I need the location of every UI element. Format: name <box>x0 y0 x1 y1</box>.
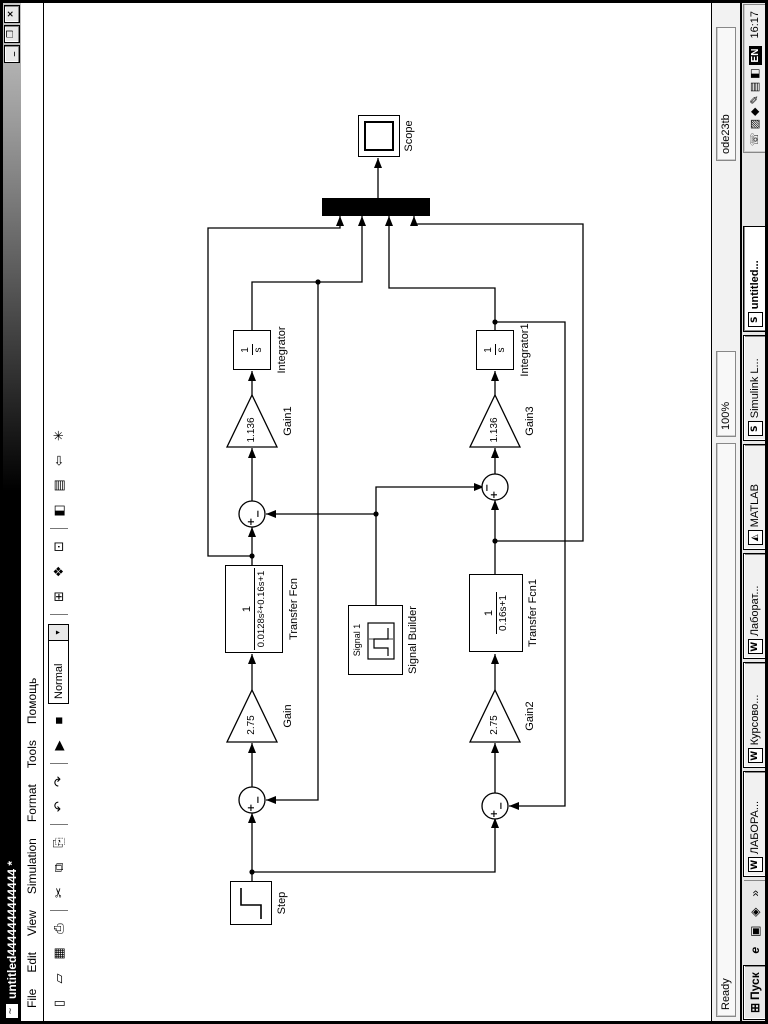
transfer-fcn-block[interactable]: 1 0.0128s²+0.16s+1 <box>225 565 283 653</box>
gain1-value[interactable]: 1.136 <box>246 415 257 445</box>
signal-builder-icon <box>367 620 397 660</box>
taskbar-window-kursovoy[interactable]: W Курсово... <box>743 662 767 768</box>
transfer-fcn1-denominator: 0.16s+1 <box>496 592 510 634</box>
tray-icon-volume[interactable]: ◧ <box>748 68 762 78</box>
workspace-icon[interactable]: ▤ <box>47 474 70 497</box>
sum-minus-sign: − <box>254 796 264 804</box>
transfer-fcn1-label: Transfer Fcn1 <box>527 574 539 652</box>
stop-simulation-icon[interactable]: ■ <box>47 709 70 732</box>
model-canvas[interactable]: Step + − 2.75 Gain 1 0.0128s²+0.16s+1 Tr… <box>73 3 712 1021</box>
status-ready: Ready <box>716 443 736 1017</box>
gain1-label: Gain1 <box>282 390 294 452</box>
update-diagram-icon[interactable]: ⊞ <box>47 585 70 608</box>
show-desktop-icon[interactable]: ▣ <box>747 923 763 939</box>
scope-screen-icon <box>364 121 394 151</box>
gain-value[interactable]: 2.75 <box>246 710 257 740</box>
taskbar-window-laboratornaya1[interactable]: W ЛАБОРА... <box>743 771 767 877</box>
transfer-fcn-denominator: 0.0128s²+0.16s+1 <box>254 568 268 651</box>
sum-plus-sign: + <box>490 810 500 818</box>
signal-builder-block[interactable]: Signal 1 <box>348 605 403 675</box>
start-button[interactable]: ⊞ Пуск <box>743 965 767 1020</box>
tray-icon-antivirus[interactable]: ◆ <box>748 107 762 115</box>
simulink-window: ~ untitled4444444444444 * _ ❐ × File Edi… <box>0 0 768 1024</box>
menu-tools[interactable]: Tools <box>23 733 41 775</box>
integrator-label: Integrator <box>276 315 288 385</box>
tray-icon-scheduler[interactable]: ▤ <box>748 82 762 92</box>
simulink-model-icon: ~ <box>5 1003 19 1019</box>
tray-icon-editor[interactable]: ✎ <box>748 95 762 104</box>
taskbar-window-label: Simulink L... <box>749 358 761 418</box>
transfer-fcn-label: Transfer Fcn <box>288 565 300 653</box>
taskbar-window-label: untitled... <box>749 260 761 309</box>
status-solver: ode23tb <box>716 27 736 161</box>
tray-icon-display[interactable]: ▨ <box>748 119 762 129</box>
taskbar-window-untitled-active[interactable]: S untitled... <box>743 226 767 332</box>
status-bar: Ready 100% ode23tb <box>711 3 740 1021</box>
window-title: untitled4444444444444 * <box>5 861 19 999</box>
toolbar-separator <box>50 763 68 764</box>
gain3-label: Gain3 <box>524 390 536 452</box>
sum-plus-sign: + <box>247 804 257 812</box>
simulation-mode-dropdown[interactable]: Normal ▾ <box>48 624 69 704</box>
sum-plus-sign: + <box>247 518 257 526</box>
cut-icon[interactable]: ✂ <box>47 881 70 904</box>
integrator1-label: Integrator1 <box>519 310 531 390</box>
signal-builder-label: Signal Builder <box>407 590 419 690</box>
integrator-block[interactable]: 1 s <box>233 330 271 370</box>
tray-icon-phone[interactable]: ☏ <box>748 132 762 146</box>
sum-minus-sign: − <box>483 484 493 492</box>
gain2-value[interactable]: 2.75 <box>489 710 500 740</box>
gain3-value[interactable]: 1.136 <box>489 415 500 445</box>
new-icon[interactable]: ▯ <box>47 992 70 1015</box>
library-browser-icon[interactable]: ❖ <box>47 560 70 583</box>
menu-help[interactable]: Помощь <box>23 671 41 731</box>
toggle-browser-icon[interactable]: ◧ <box>47 499 70 522</box>
integrator1-denominator: s <box>495 345 508 356</box>
mux-block[interactable] <box>322 198 430 216</box>
keyboard-language-indicator[interactable]: EN <box>749 46 762 66</box>
simulink-icon: S <box>748 312 763 327</box>
integrator-numerator: 1 <box>240 347 252 353</box>
menu-bar: File Edit View Simulation Format Tools П… <box>21 3 44 1021</box>
taskbar-clock: 16:17 <box>749 11 761 43</box>
start-simulation-icon[interactable]: ▶ <box>47 734 70 757</box>
close-button[interactable]: × <box>4 5 20 23</box>
toolbar-separator <box>50 614 68 615</box>
word-document-icon: W <box>748 857 763 872</box>
simulation-mode-value: Normal <box>53 641 65 703</box>
toolbar-separator <box>50 910 68 911</box>
debug-icon[interactable]: ✳ <box>47 424 70 447</box>
status-zoom-level: 100% <box>716 351 736 437</box>
taskbar: ⊞ Пуск e ▣ ◈ » W ЛАБОРА... W Курсово... … <box>740 0 768 1024</box>
sum-minus-sign: − <box>254 510 264 518</box>
internet-explorer-icon[interactable]: e <box>747 942 763 958</box>
diagram-layer: Step + − 2.75 Gain 1 0.0128s²+0.16s+1 Tr… <box>73 3 712 1021</box>
transfer-fcn1-block[interactable]: 1 0.16s+1 <box>469 574 523 652</box>
screen: ~ untitled4444444444444 * _ ❐ × File Edi… <box>0 0 768 1024</box>
integrator1-block[interactable]: 1 s <box>476 330 514 370</box>
windows-logo-icon: ⊞ <box>748 1003 762 1013</box>
start-button-label: Пуск <box>748 972 762 1000</box>
print-icon[interactable]: ⎙ <box>47 917 70 940</box>
step-icon <box>231 882 271 924</box>
open-icon[interactable]: ▱ <box>47 967 70 990</box>
menu-edit[interactable]: Edit <box>23 945 41 980</box>
menu-file[interactable]: File <box>23 982 41 1015</box>
model-browser-icon[interactable]: ⊡ <box>47 535 70 558</box>
title-bar: ~ untitled4444444444444 * _ ❐ × <box>3 3 21 1021</box>
matlab-icon: ◭ <box>748 530 763 545</box>
system-tray: ☏ ▨ ◆ ✎ ▤ ◧ EN 16:17 <box>743 4 767 153</box>
word-document-icon: W <box>748 639 763 654</box>
save-icon[interactable]: ▦ <box>47 942 70 965</box>
transfer-fcn-numerator: 1 <box>241 606 254 612</box>
integrator1-numerator: 1 <box>483 347 495 353</box>
paste-icon[interactable]: ⎘ <box>47 831 70 854</box>
sum-minus-sign: − <box>497 802 507 810</box>
taskbar-window-simulink-library[interactable]: S Simulink L... <box>743 335 767 441</box>
menu-view[interactable]: View <box>23 903 41 943</box>
menu-format[interactable]: Format <box>23 777 41 829</box>
toolbar-separator <box>50 824 68 825</box>
taskbar-window-matlab[interactable]: ◭ MATLAB <box>743 444 767 550</box>
signal-builder-signal-name: Signal 1 <box>352 606 362 674</box>
taskbar-window-label: Лаборат... <box>749 586 761 637</box>
go-to-parent-icon[interactable]: ⇦ <box>47 449 70 472</box>
gain-label: Gain <box>282 685 294 747</box>
step-label: Step <box>276 859 288 947</box>
maximize-button[interactable]: ❐ <box>4 25 20 43</box>
menu-simulation[interactable]: Simulation <box>23 831 41 901</box>
step-block[interactable] <box>230 881 272 925</box>
media-player-icon[interactable]: ◈ <box>747 904 763 920</box>
gain2-label: Gain2 <box>524 685 536 747</box>
transfer-fcn1-numerator: 1 <box>483 610 496 616</box>
taskbar-window-label: MATLAB <box>749 484 761 527</box>
redo-icon[interactable]: ↷ <box>47 770 70 793</box>
taskbar-window-label: ЛАБОРА... <box>749 801 761 854</box>
quick-launch-overflow-chevron[interactable]: » <box>747 885 763 901</box>
minimize-button[interactable]: _ <box>4 45 20 63</box>
scope-label: Scope <box>403 108 415 164</box>
scope-block[interactable] <box>358 115 400 157</box>
undo-icon[interactable]: ↶ <box>47 795 70 818</box>
taskbar-window-laboratornaya2[interactable]: W Лаборат... <box>743 553 767 659</box>
toolbar: ▯ ▱ ▦ ⎙ ✂ ⧉ ⎘ ↶ ↷ ▶ ■ Normal ▾ ⊞ ❖ ⊡ ◧ ▤… <box>44 3 74 1021</box>
word-document-icon: W <box>748 748 763 763</box>
simulink-icon: S <box>748 421 763 436</box>
taskbar-window-label: Курсово... <box>749 695 761 746</box>
chevron-down-icon[interactable]: ▾ <box>49 625 68 641</box>
quick-launch: e ▣ ◈ » <box>744 880 766 962</box>
copy-icon[interactable]: ⧉ <box>47 856 70 879</box>
toolbar-separator <box>50 528 68 529</box>
integrator-denominator: s <box>252 345 265 356</box>
